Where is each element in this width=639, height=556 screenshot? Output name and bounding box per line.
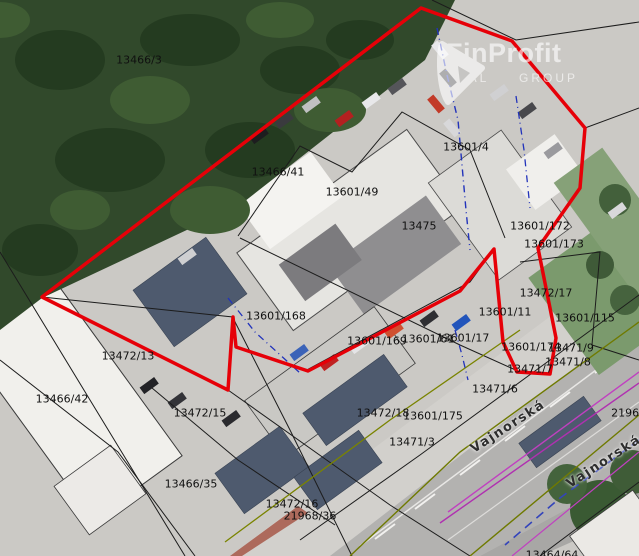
satellite-imagery — [0, 0, 639, 556]
map-canvas[interactable]: 13466/313466/4113601/4913601/41347513601… — [0, 0, 639, 556]
